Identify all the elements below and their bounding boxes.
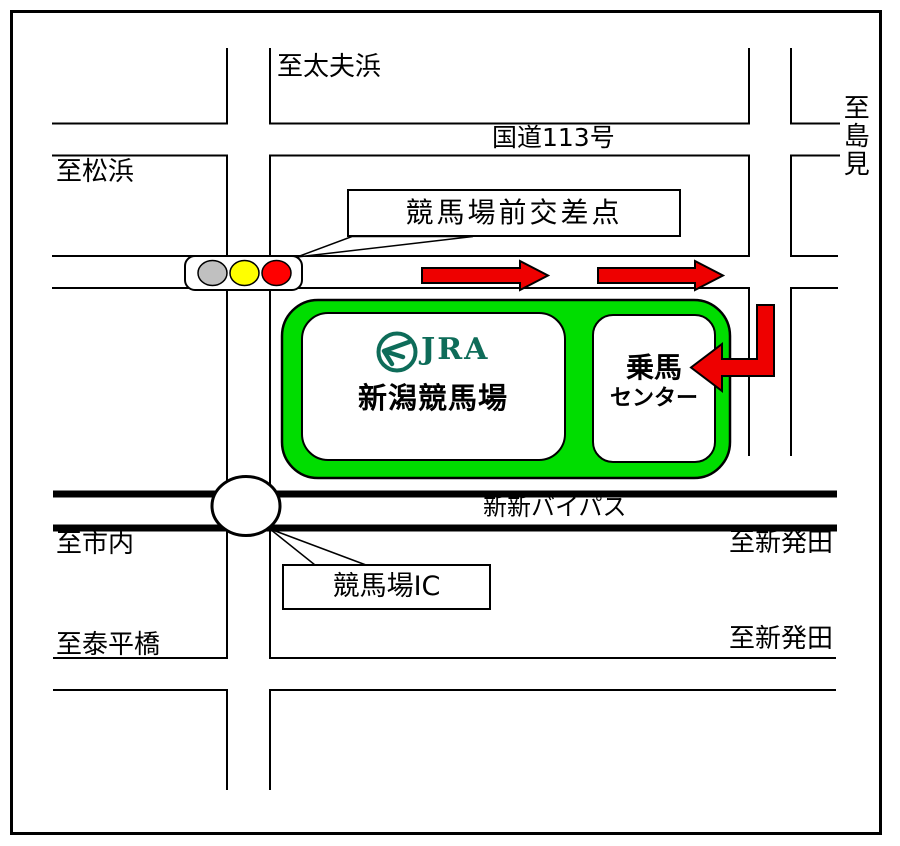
label-to-shibata-lower: 至新発田 [729, 626, 833, 653]
signal-gray-lamp [198, 261, 227, 286]
interchange-circle-icon [212, 477, 280, 536]
label-bypass: 新新バイパス [483, 495, 627, 520]
route-map: 至太夫浜 国道113号 至松浜 至島見 競馬場前交差点 JRA 新潟競馬場 乗馬… [0, 0, 900, 846]
label-riding-center-line1: 乗馬 [626, 353, 682, 382]
signal-red-lamp [262, 261, 291, 286]
traffic-light-icon [185, 256, 302, 290]
label-to-shinai: 至市内 [56, 531, 134, 558]
label-to-shibata-upper: 至新発田 [729, 530, 833, 557]
label-jra: JRA [421, 334, 489, 366]
label-route-113: 国道113号 [492, 125, 615, 151]
label-riding-center-line2: センター [610, 387, 698, 410]
label-racecourse-name: 新潟競馬場 [358, 383, 508, 413]
signal-yellow-lamp [230, 261, 259, 286]
label-to-matsuhama: 至松浜 [56, 159, 134, 186]
label-to-shimami: 至島見 [840, 94, 867, 178]
map-drawing [0, 0, 900, 846]
label-interchange-callout: 競馬場IC [283, 565, 490, 609]
label-intersection-callout: 競馬場前交差点 [348, 190, 680, 236]
label-to-tayuhama: 至太夫浜 [277, 54, 381, 81]
label-to-taiheibashi: 至泰平橋 [56, 632, 160, 659]
